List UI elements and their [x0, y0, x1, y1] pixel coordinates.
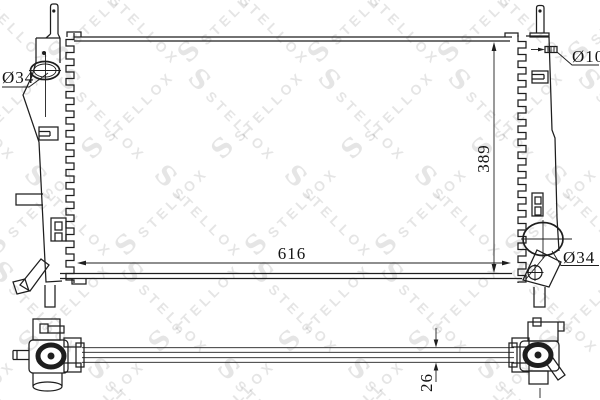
- filler-cylinder: [36, 38, 60, 63]
- drawing-canvas: [0, 0, 600, 400]
- right-tank-outline: [549, 37, 559, 251]
- foot-right-leg: [534, 287, 545, 307]
- dim-26-arrow-bottom: [434, 363, 439, 371]
- filler-pipe-hole: [52, 9, 55, 12]
- pin-o10-arrow: [538, 48, 545, 52]
- foot-left-leg: [45, 285, 55, 307]
- dim-26-arrow-top: [434, 340, 439, 348]
- right-lower-block: [529, 371, 548, 384]
- right-end-fitting: [520, 318, 565, 398]
- left-end-fitting: [13, 319, 68, 391]
- dim-616-arrow-right: [502, 261, 511, 266]
- radiator-technical-drawing: SSTELLOXSSTELLOXSSTELLOXSSTELLOXSSTELLOX…: [0, 0, 600, 400]
- top-pin-hole: [538, 9, 541, 12]
- core-top-edge: [74, 37, 512, 41]
- dim-label-core-thickness: 26: [418, 373, 435, 392]
- dim-label-filler-diameter: Ø34: [2, 69, 34, 86]
- right-bracket: [528, 318, 564, 341]
- clip-lower-left: [51, 218, 66, 241]
- dim-label-outlet-diameter: Ø34: [563, 249, 595, 266]
- dim-label-core-height: 389: [475, 144, 492, 173]
- left-tank-outline: [23, 62, 62, 282]
- left-side-pipe: [13, 351, 29, 360]
- right-port-center: [535, 352, 542, 359]
- foot-left-ledge: [13, 279, 29, 294]
- filler-neck: [29, 4, 61, 117]
- filler-pipe: [51, 4, 59, 34]
- core-band: [82, 348, 514, 363]
- right-diagonal-bracket: [546, 358, 565, 380]
- dim-label-pin-diameter: Ø10: [572, 48, 600, 65]
- left-bracket: [33, 319, 64, 340]
- clip-lower-right: [532, 193, 543, 216]
- dim-616-arrow-left: [77, 261, 86, 266]
- dim-389-arrow-bottom: [492, 264, 497, 273]
- clip-upper-right: [532, 71, 548, 83]
- left-lower-cylinder: [33, 373, 62, 386]
- left-cylinder-bottom: [33, 382, 62, 391]
- bottom-view: [13, 318, 565, 398]
- serrated-left: [66, 33, 74, 283]
- clip-upper-left: [39, 127, 58, 140]
- left-mount-tab: [16, 194, 43, 205]
- left-clamp: [64, 338, 84, 372]
- dim-label-core-width: 616: [272, 245, 312, 262]
- dimension-lines: [2, 42, 599, 382]
- left-port-center: [48, 353, 55, 360]
- core-bottom-edge: [60, 274, 522, 279]
- dim-389-arrow-top: [492, 42, 497, 51]
